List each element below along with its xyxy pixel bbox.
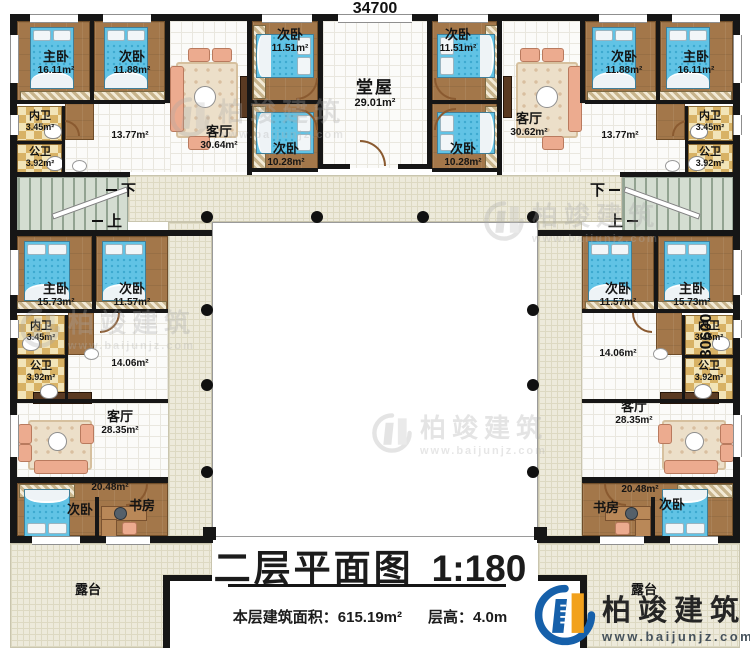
window [733,250,742,295]
label-mr-bed2: 次卧11.57m² [584,282,652,308]
sofa-tr-chair2 [520,48,540,62]
wall [497,21,502,175]
column [527,211,539,223]
label-tr-living: 客厅30.62m² [498,112,560,138]
label-br-bed: 次卧 [650,498,694,513]
wall [432,168,497,172]
coffee-table-bl [48,432,67,451]
column [527,466,539,478]
window [32,536,80,545]
window [10,250,19,295]
label-terrace-left: 露台 [56,583,120,598]
label-tl-living: 客厅30.64m² [188,125,250,151]
wall [17,141,62,144]
window [733,320,742,338]
brand-url: www.baijunjz.com [602,629,750,644]
label-hall-main: 堂屋29.01m² [338,78,412,109]
stair-tick [627,220,638,222]
wall [620,172,740,177]
wall [17,309,168,313]
wall [582,477,733,483]
coffee-table-tr [536,86,558,108]
label-br-hall-area: 20.48m² [604,484,676,495]
wall [688,141,733,144]
plan-scale-text: 1:180 [432,548,527,589]
window [600,536,644,545]
wall [585,100,733,104]
label-tl-hall-area: 13.77m² [98,130,162,141]
window [733,415,742,457]
wall [398,164,432,169]
window [106,536,150,545]
label-tl-bath-pub: 公卫3.92m² [18,146,62,168]
window [10,35,19,83]
sofa-br-chair1 [720,424,734,444]
wall [580,21,585,103]
wall [17,100,165,104]
sofa-tr-chair3 [542,136,564,150]
sink-mr [653,348,668,360]
window [103,14,151,23]
wall [10,172,130,177]
label-tc-bed-r1: 次卧11.51m² [430,28,486,54]
walkway-right [538,222,582,537]
wall [538,230,740,236]
column [201,304,213,316]
column [201,466,213,478]
window [733,115,742,135]
wall [252,168,318,172]
label-bl-bed: 次卧 [58,503,102,518]
label-br-living: 客厅28.35m² [602,400,666,426]
sink-tl [72,160,87,172]
wall [318,21,323,168]
label-tl-bed2: 次卧11.88m² [96,50,168,76]
dimension-top: 34700 [330,0,420,18]
window [30,14,78,23]
floor-height-label: 层高： [428,609,473,626]
label-tl-master: 主卧16.11m² [20,50,92,76]
window [438,14,488,23]
label-bl-hall-area: 20.48m² [74,482,146,493]
label-tl-bath-in: 内卫3.45m² [18,110,62,132]
label-tr-bath-pub: 公卫3.92m² [688,146,732,168]
stair-right-down-label: 下 [590,179,620,200]
wall [65,315,68,402]
label-ml-bath-pub: 公卫3.92m² [18,360,64,382]
column [527,304,539,316]
sofa-tr-chair1 [542,48,564,62]
toilet-ml-pub [40,384,58,399]
sofa-bl-main [34,460,88,474]
label-mr-hall-area: 14.06m² [586,348,650,359]
chair-bl-study [122,522,137,535]
sofa-br-main [664,460,718,474]
label-ml-hall-area: 14.06m² [98,358,162,369]
floor-height-value: 4.0m [473,609,507,626]
wall [432,100,497,104]
plan-title-text: 二层平面图 [214,548,414,589]
sink-tr [665,160,680,172]
dimension-right: 30600 [698,301,716,371]
sofa-bl-chair2 [18,444,32,462]
floor-area-value: 615.19m² [338,609,402,626]
toilet-mr-pub [694,384,712,399]
wall [682,315,685,402]
sofa-br-chair2 [720,444,734,462]
window [262,14,312,23]
column [201,211,213,223]
window [599,14,647,23]
sofa-bl-chair1 [18,424,32,444]
label-tr-bath-in: 内卫3.45m² [688,110,732,132]
sofa-tl-chair2 [212,48,232,62]
column [311,211,323,223]
wall [17,355,65,358]
label-bl-living: 客厅28.35m² [88,410,152,436]
coffee-table-tl [194,86,216,108]
sofa-tl-main [170,66,184,132]
label-bl-study: 书房 [120,499,164,514]
stair-left-down-label: 下 [106,179,136,200]
label-tc-bed-r2: 次卧10.28m² [432,142,494,168]
floor-plan: 下 上 下 上 主卧16.11m² 次卧11.88m² 客厅30.64m² 内卫… [0,0,750,658]
brand-name: 柏竣建筑 [602,587,750,629]
label-ml-master: 主卧15.73m² [22,282,90,308]
label-ml-bath-in: 内卫3.45m² [18,320,64,342]
label-tr-hall-area: 13.77m² [588,130,652,141]
label-br-study: 书房 [584,501,628,516]
wall [92,236,96,309]
column [527,379,539,391]
wall [62,106,65,174]
label-ml-bed2: 次卧11.57m² [98,282,166,308]
label-tr-bed2: 次卧11.88m² [588,50,660,76]
stair-right-up-label: 上 [608,210,638,231]
floor-area-label: 本层建筑面积： [233,609,338,626]
stair-tick [92,220,103,222]
sofa-br-chair3 [658,424,672,444]
chair-br-study [615,522,630,535]
window [733,35,742,83]
brand-logo-icon [532,582,598,648]
column [201,379,213,391]
wall [247,21,252,175]
window [670,536,718,545]
sink-ml [84,348,99,360]
title-underline [228,584,506,587]
courtyard [212,222,538,537]
wall [318,164,350,169]
label-tr-master: 主卧16.11m² [660,50,732,76]
window [10,415,19,457]
brand-logo: 柏竣建筑 www.baijunjz.com [532,582,750,648]
window [672,14,720,23]
plan-stats: 本层建筑面积：615.19m²层高：4.0m [160,606,580,627]
column [417,211,429,223]
coffee-table-br [685,432,704,451]
label-tc-bed-l2: 次卧10.28m² [255,142,317,168]
stair-tick [609,189,620,191]
stair-left-up-label: 上 [92,210,122,231]
wall [17,399,168,403]
sofa-tl-chair1 [188,48,210,62]
label-tc-bed-l1: 次卧11.51m² [262,28,318,54]
stair-tick [106,189,117,191]
wall [252,100,318,104]
